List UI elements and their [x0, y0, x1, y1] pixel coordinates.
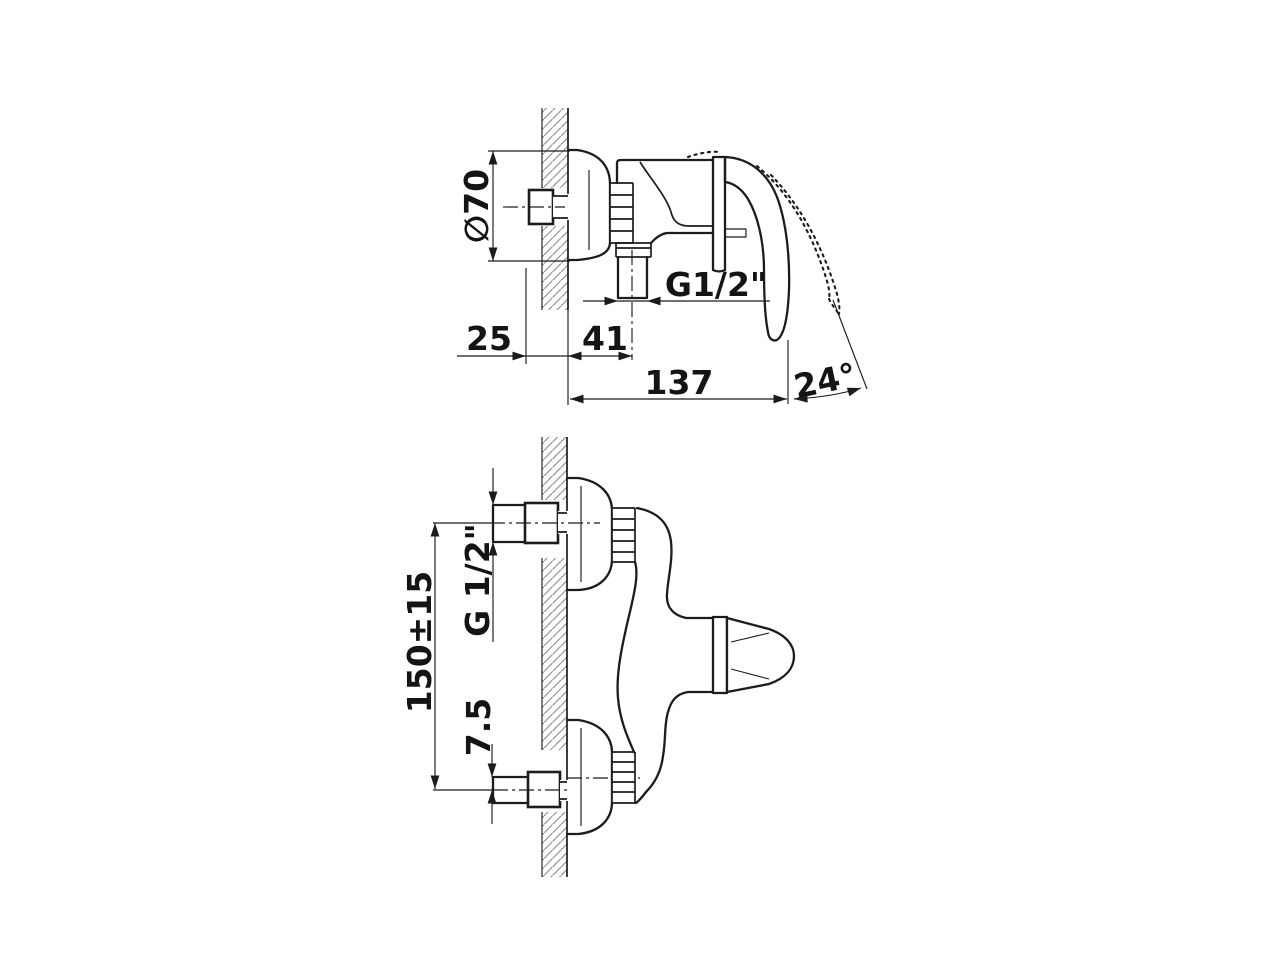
dimension-eccentric-7-5: 7.5 [459, 698, 498, 824]
dim-label-41: 41 [582, 319, 628, 358]
escutcheon [568, 150, 610, 260]
dim-label-angle: 24° [790, 355, 859, 406]
dim-label-spacing: 150±15 [400, 571, 439, 713]
dimension-outlet-thread: G1/2" [583, 265, 770, 305]
lower-inlet-connection [433, 772, 640, 807]
dim-label-inlet-thread: G 1/2" [458, 523, 497, 637]
front-view: G 1/2" 150±15 7.5 [400, 437, 794, 877]
mounting-nut [503, 190, 568, 224]
dim-label-outlet-thread: G1/2" [665, 265, 767, 304]
connection-rings [610, 183, 633, 243]
lever-handle [713, 157, 789, 340]
lower-escutcheon [567, 720, 612, 834]
upper-connection-rings [612, 508, 635, 562]
drawing-sheet: ∅70 25 41 G1/2" 137 [0, 0, 1280, 960]
cartridge-cap-line [640, 162, 713, 226]
dim-label-25: 25 [466, 319, 512, 358]
mixer-technical-drawing: ∅70 25 41 G1/2" 137 [0, 0, 1280, 960]
lower-connection-rings [612, 752, 635, 803]
dimension-spacing-150: 150±15 [400, 523, 439, 789]
knob-collar [713, 617, 727, 693]
handle-knob [713, 617, 794, 693]
upper-escutcheon [567, 478, 612, 590]
dim-label-diameter: ∅70 [457, 169, 496, 243]
side-view: ∅70 25 41 G1/2" 137 [457, 108, 867, 406]
dimension-angle-24: 24° [790, 300, 867, 406]
dimension-inlet-thread: G 1/2" [458, 468, 497, 642]
body-tab [725, 229, 746, 237]
dim-label-137: 137 [645, 363, 714, 402]
dim-label-eccentric: 7.5 [459, 698, 498, 756]
handle-collar [713, 157, 725, 272]
